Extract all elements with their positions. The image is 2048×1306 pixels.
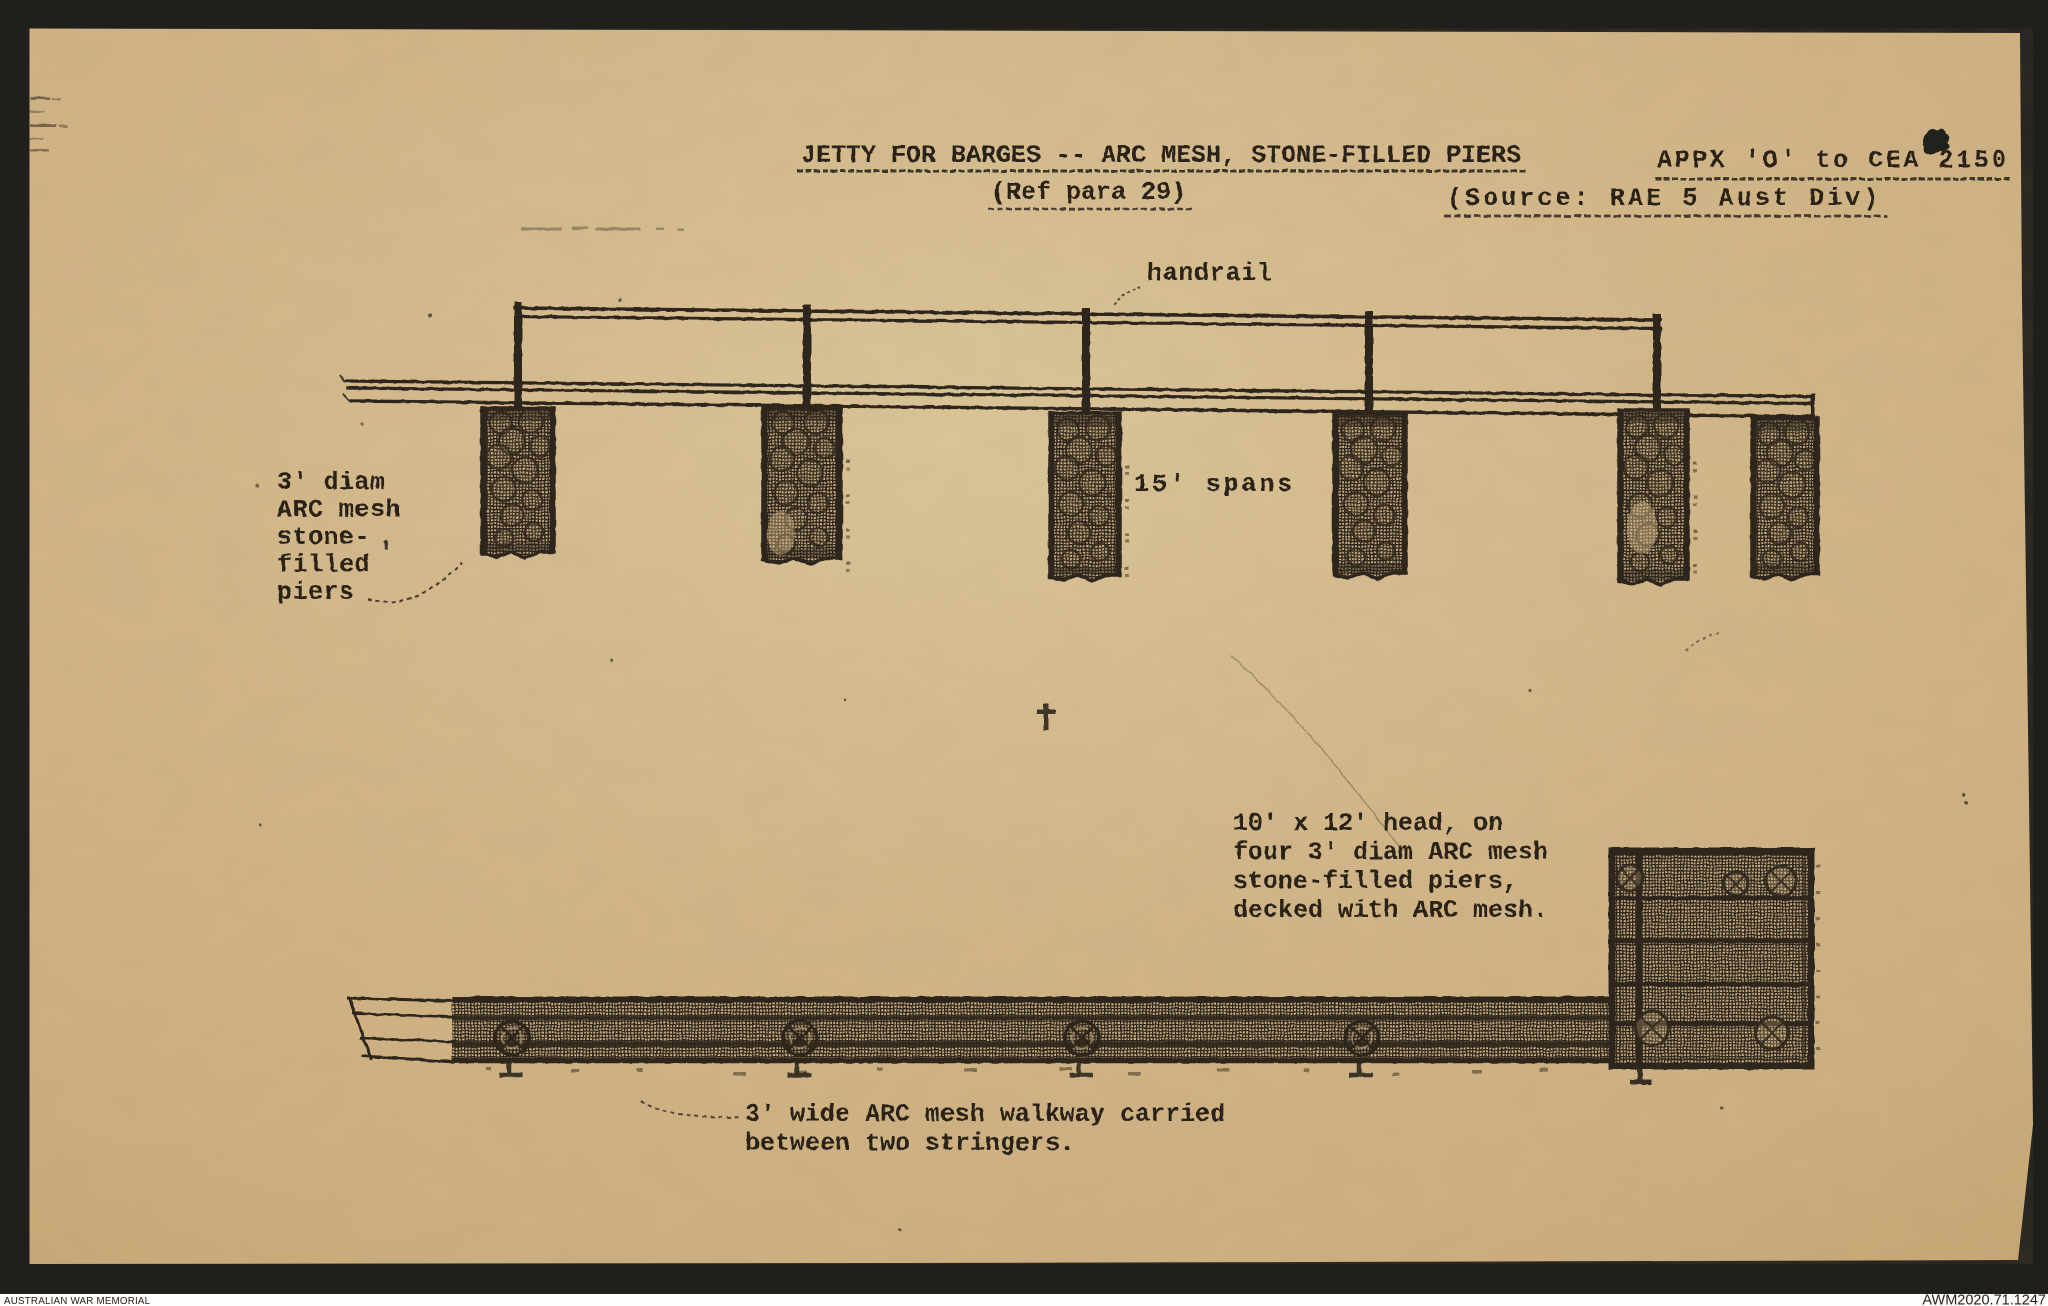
svg-text:3' wide ARC mesh walkway carri: 3' wide ARC mesh walkway carried — [745, 1100, 1225, 1129]
svg-text:(Ref para 29): (Ref para 29) — [991, 178, 1186, 207]
svg-text:AWM2020.71.1247: AWM2020.71.1247 — [1922, 1293, 2046, 1306]
svg-text:filled: filled — [277, 551, 370, 580]
svg-text:JETTY FOR BARGES -- ARC MESH,: JETTY FOR BARGES -- ARC MESH, STONE-FILL… — [801, 141, 1521, 170]
svg-text:ARC mesh: ARC mesh — [277, 496, 401, 525]
svg-text:decked with ARC mesh.: decked with ARC mesh. — [1233, 896, 1548, 925]
svg-text:four 3' diam ARC mesh: four 3' diam ARC mesh — [1233, 838, 1548, 867]
svg-text:piers: piers — [277, 578, 355, 607]
svg-text:APPX 'O' to CEA 2150: APPX 'O' to CEA 2150 — [1657, 146, 2009, 175]
svg-text:stone-: stone- — [277, 523, 370, 552]
svg-text:handrail: handrail — [1147, 259, 1273, 288]
svg-text:stone-filled piers,: stone-filled piers, — [1233, 867, 1518, 896]
svg-text:10' x 12' head, on: 10' x 12' head, on — [1233, 809, 1503, 838]
svg-text:3' diam: 3' diam — [277, 468, 386, 497]
svg-text:15' spans: 15' spans — [1134, 470, 1295, 499]
svg-text:(Source: RAE 5 Aust Div): (Source: RAE 5 Aust Div) — [1447, 184, 1881, 213]
svg-text:between two stringers.: between two stringers. — [745, 1129, 1075, 1158]
svg-text:AUSTRALIAN WAR MEMORIAL: AUSTRALIAN WAR MEMORIAL — [4, 1296, 151, 1306]
